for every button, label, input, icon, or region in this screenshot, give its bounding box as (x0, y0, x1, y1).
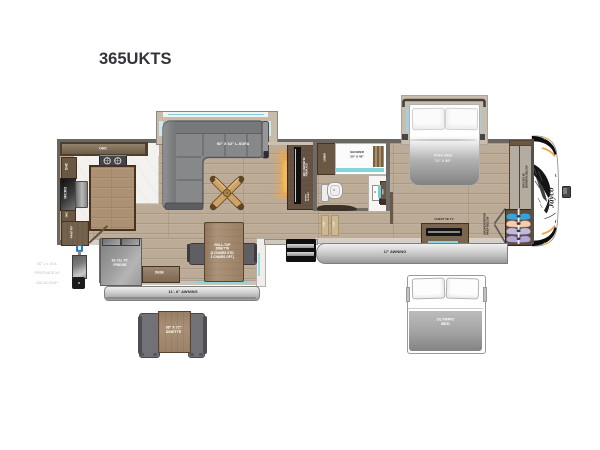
svg-text:Jayco: Jayco (546, 187, 556, 209)
